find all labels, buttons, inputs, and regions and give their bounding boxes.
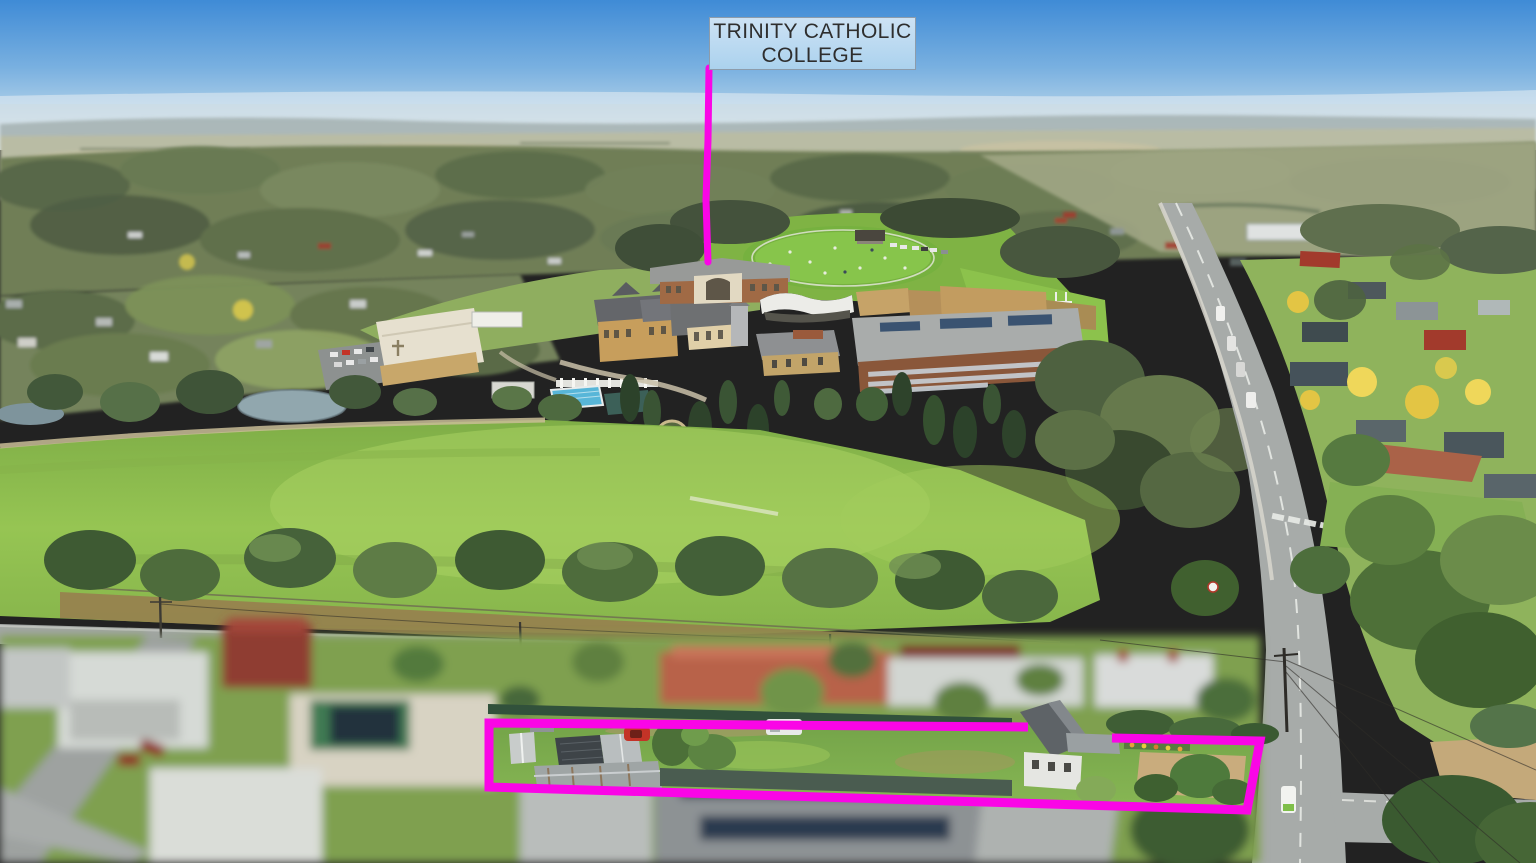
- aerial-photo: TRINITY CATHOLIC COLLEGE: [0, 0, 1536, 863]
- aerial-photo-scene: [0, 0, 1536, 863]
- school-name-label: TRINITY CATHOLIC COLLEGE: [709, 17, 916, 70]
- school-name-line2: COLLEGE: [761, 44, 863, 68]
- leader-line: [706, 68, 709, 262]
- cottage-building: [756, 330, 840, 376]
- school-name-line1: TRINITY CATHOLIC: [713, 20, 911, 44]
